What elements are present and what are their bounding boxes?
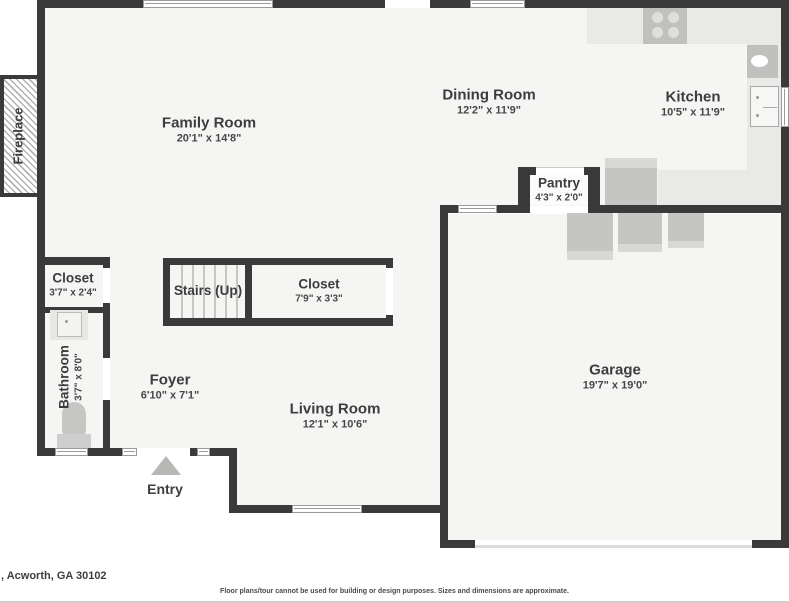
- address-text: , Acworth, GA 30102: [1, 570, 107, 582]
- faucet-dot-icon: [65, 320, 68, 323]
- appliance-front: [567, 251, 613, 260]
- wall: [273, 0, 385, 8]
- stove-burner-icon: [652, 27, 663, 38]
- wall: [210, 448, 237, 456]
- room-label-living-room: Living Room 12'1" x 10'6": [290, 400, 381, 431]
- wall: [386, 258, 393, 268]
- kitchen-counter-bottom: [658, 170, 747, 206]
- sidelight-icon: [122, 448, 137, 456]
- window-icon: [470, 0, 525, 8]
- appliance-icon: [668, 213, 704, 248]
- stove-burner-icon: [668, 12, 679, 23]
- wall: [362, 505, 440, 513]
- room-label-pantry: Pantry 4'3" x 2'0": [535, 176, 583, 205]
- wall: [88, 448, 122, 456]
- bathroom-door-opening: [103, 358, 110, 400]
- wall: [525, 0, 789, 8]
- closet-door-opening: [103, 268, 110, 303]
- stove-burner-icon: [668, 27, 679, 38]
- door-opening: [458, 205, 497, 213]
- window-icon: [292, 505, 362, 513]
- wall: [781, 0, 789, 87]
- wall-opening: [385, 0, 430, 8]
- refrigerator-icon: [605, 158, 657, 206]
- stove-icon: [643, 8, 687, 44]
- faucet-dot-icon: [756, 96, 759, 99]
- window-icon: [55, 448, 88, 456]
- toilet-tank-icon: [57, 434, 91, 449]
- pantry-door-opening: [536, 167, 584, 175]
- wall: [245, 258, 252, 326]
- wall: [386, 315, 393, 326]
- floor-plan: Family Room 20'1" x 14'8" Dining Room 12…: [0, 0, 789, 603]
- wall: [37, 257, 110, 265]
- sink-divider: [763, 107, 777, 108]
- closet-door-opening: [386, 268, 393, 315]
- sink-basin-icon: [751, 55, 768, 67]
- wall: [430, 0, 470, 8]
- room-label-garage: Garage 19'7" x 19'0": [583, 361, 648, 392]
- window-icon: [781, 87, 789, 127]
- wall: [190, 448, 197, 456]
- entry-arrow-icon: [151, 456, 181, 475]
- appliance-front: [668, 241, 704, 248]
- pantry-wall: [588, 167, 600, 213]
- window-icon: [143, 0, 273, 8]
- wall: [103, 400, 110, 448]
- kitchen-sink-icon: [747, 45, 778, 78]
- wall: [497, 205, 518, 213]
- wall: [37, 448, 55, 456]
- wall: [163, 258, 170, 326]
- disclaimer-text: Floor plans/tour cannot be used for buil…: [0, 588, 789, 595]
- wall: [163, 258, 393, 265]
- entry-label: Entry: [147, 481, 183, 497]
- fireplace-label: Fireplace: [12, 107, 27, 164]
- wall: [229, 456, 237, 513]
- room-label-kitchen: Kitchen 10'5" x 11'9": [661, 88, 725, 119]
- appliance-icon: [567, 213, 613, 260]
- sink-bowl-icon: [57, 312, 82, 337]
- entry-door-opening: [137, 448, 190, 456]
- room-label-bathroom: Bathroom 3'7" x 8'0": [57, 345, 86, 409]
- faucet-dot-icon: [756, 114, 759, 117]
- room-label-foyer: Foyer 6'10" x 7'1": [141, 371, 199, 402]
- room-label-closet-long: Closet 7'9" x 3'3": [295, 277, 343, 306]
- wall: [237, 505, 292, 513]
- wall: [440, 205, 448, 548]
- wall: [37, 0, 143, 8]
- wall: [600, 205, 781, 213]
- wall: [103, 313, 110, 358]
- floor-living: [237, 456, 448, 505]
- garage-door: [475, 540, 752, 548]
- room-label-dining-room: Dining Room 12'2" x 11'9": [442, 86, 535, 117]
- sidelight-icon: [197, 448, 210, 456]
- wall: [781, 127, 789, 548]
- wall: [163, 318, 393, 326]
- pantry-wall: [518, 167, 530, 213]
- bathroom-sink-icon: [50, 310, 88, 340]
- appliance-front: [618, 244, 662, 252]
- room-label-closet-small: Closet 3'7" x 2'4": [49, 271, 97, 300]
- appliance-icon: [618, 213, 662, 252]
- wall: [103, 257, 110, 268]
- wall: [752, 540, 789, 548]
- wall: [37, 0, 45, 456]
- room-label-stairs: Stairs (Up): [174, 283, 242, 299]
- stove-burner-icon: [652, 12, 663, 23]
- refrigerator-top: [605, 158, 657, 168]
- room-label-family-room: Family Room 20'1" x 14'8": [162, 114, 256, 145]
- double-sink-icon: [750, 86, 779, 127]
- wall: [448, 205, 458, 213]
- wall: [440, 540, 475, 548]
